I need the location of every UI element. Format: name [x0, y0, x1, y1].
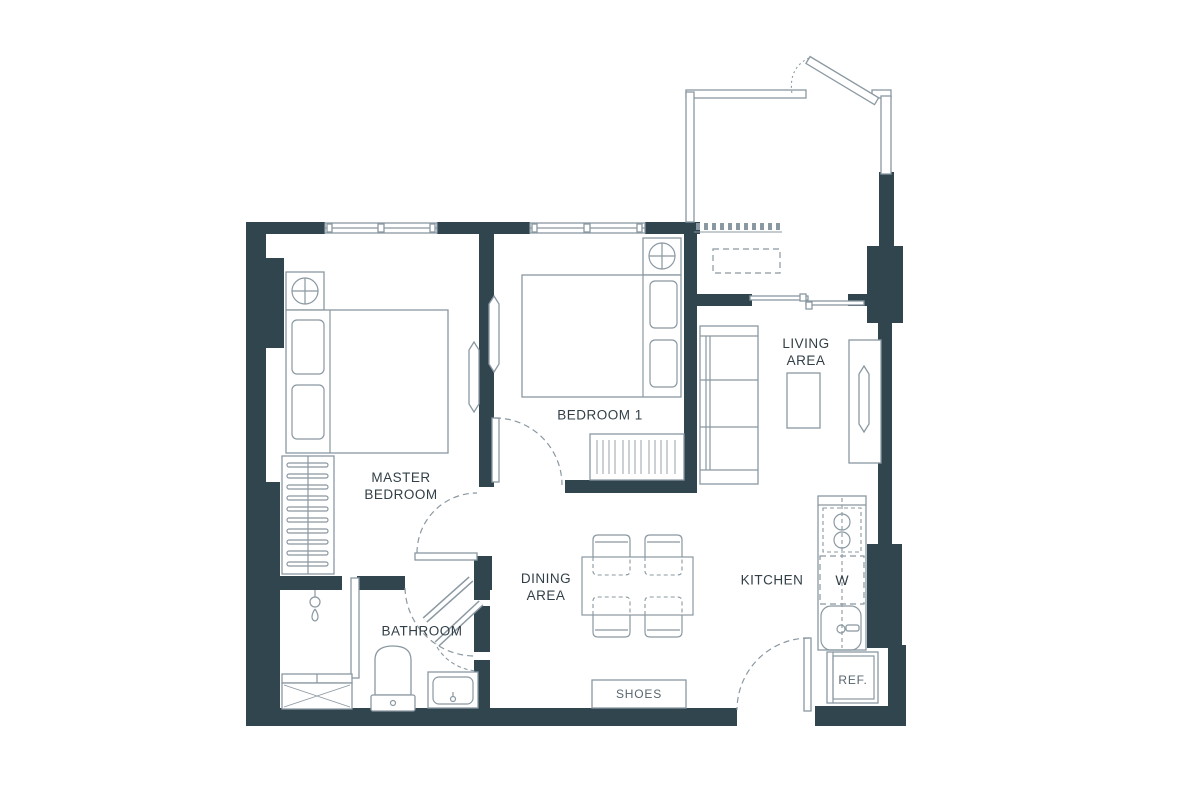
master-lamp-icon: [292, 278, 318, 304]
living-area-label-line1: LIVING: [782, 335, 829, 352]
entrance-door: [737, 638, 811, 711]
balcony-left-wall: [686, 92, 694, 222]
bathroom-label: BATHROOM: [382, 623, 463, 640]
washer-label: W: [835, 572, 848, 588]
shower-glass: [351, 578, 359, 678]
balcony-door-leaf: [806, 57, 879, 105]
tv-icon: [859, 366, 869, 432]
bathroom: [282, 578, 481, 711]
bathroom-sink-icon: [428, 672, 478, 708]
bedroom1-door: [492, 418, 562, 485]
refrigerator-label: REF.: [838, 673, 867, 687]
master-bedroom-label-line1: MASTER: [364, 469, 437, 486]
balcony-sliding-door: [750, 294, 864, 309]
dining-chair: [593, 535, 630, 575]
shoes-label: SHOES: [616, 687, 662, 701]
dining-area-label-line1: DINING: [521, 570, 571, 587]
dining-chair: [645, 535, 682, 575]
master-bedroom: [282, 272, 477, 574]
dining-area-label: DINING AREA: [521, 570, 571, 604]
dining-table: [582, 557, 693, 615]
floorplan-page: MASTER BEDROOM BEDROOM 1 LIVING AREA DIN…: [0, 0, 1200, 800]
bedroom1-wardrobe: [590, 434, 684, 480]
master-door: [415, 493, 477, 560]
balcony-right-wall: [881, 96, 891, 174]
shower: [282, 578, 359, 709]
master-bedroom-label-line2: BEDROOM: [364, 486, 437, 503]
balcony-drain-grille: [694, 223, 782, 232]
balcony: [686, 57, 891, 309]
balcony-top-wall: [686, 90, 806, 98]
bedroom1-window: [530, 223, 645, 233]
dining-chair: [645, 597, 682, 637]
toilet-icon: [371, 646, 415, 711]
living-area-label: LIVING AREA: [782, 335, 829, 369]
dining-area: [582, 535, 693, 708]
living-area-label-line2: AREA: [782, 352, 829, 369]
bedroom1-label: BEDROOM 1: [557, 407, 643, 424]
tv-console: [849, 340, 881, 463]
shower-head-icon: [310, 597, 320, 607]
bedroom1-bed: [522, 275, 681, 397]
dining-area-label-line2: AREA: [521, 587, 571, 604]
master-bedroom-label: MASTER BEDROOM: [364, 469, 437, 503]
master-bedroom-window: [325, 223, 437, 233]
kitchen-label: KITCHEN: [741, 572, 804, 589]
balcony-planter: [713, 249, 780, 273]
coffee-table: [787, 373, 820, 428]
floorplan-drawing: [0, 0, 1200, 800]
bedroom1-lamp-icon: [649, 243, 675, 269]
master-bed: [286, 310, 448, 453]
sofa: [700, 326, 758, 484]
master-wardrobe: [282, 456, 334, 574]
bedroom1: [492, 238, 684, 485]
dining-chair: [593, 597, 630, 637]
